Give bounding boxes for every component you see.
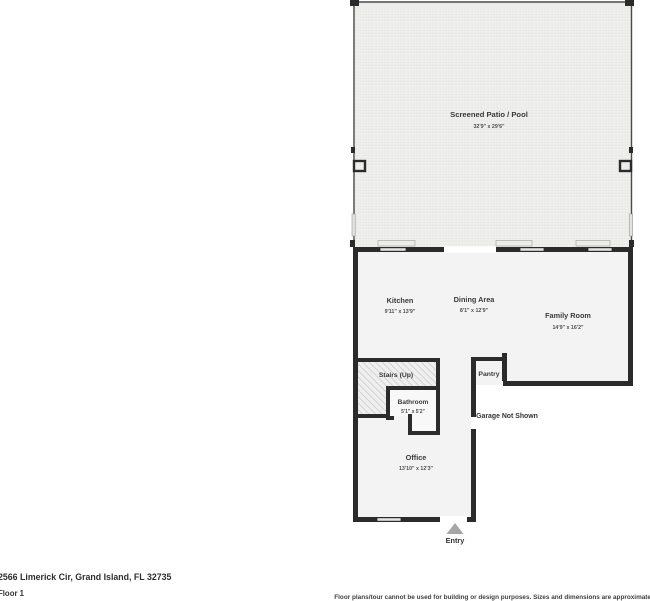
office-dims: 13'10" x 12'3" bbox=[399, 466, 434, 472]
patio-corner-tr bbox=[625, 0, 634, 6]
floor-label: Floor 1 bbox=[0, 589, 25, 598]
wall-pantry-right bbox=[502, 353, 507, 381]
window-office bbox=[377, 518, 401, 521]
patio-sill-1 bbox=[378, 241, 415, 247]
wall-office-right bbox=[471, 429, 476, 522]
patio-door-opening bbox=[444, 247, 496, 254]
entry-opening bbox=[440, 516, 467, 523]
entry-arrow-icon bbox=[447, 523, 464, 534]
bathroom-dims: 5'1" x 5'2" bbox=[401, 409, 425, 415]
patio-corner-bl bbox=[350, 240, 355, 247]
window-top-3 bbox=[588, 248, 612, 251]
disclaimer-text: Floor plans/tour cannot be used for buil… bbox=[334, 594, 650, 601]
dining-dims: 8'1" x 12'9" bbox=[460, 308, 489, 314]
patio-corner-br bbox=[629, 240, 634, 247]
patio-tick-left bbox=[351, 147, 355, 153]
bathroom-label: Bathroom bbox=[398, 399, 429, 406]
patio-sill-2 bbox=[496, 241, 532, 247]
wall-left bbox=[353, 247, 358, 522]
wall-family-bottom bbox=[503, 381, 633, 386]
window-top-2 bbox=[520, 248, 544, 251]
kitchen-dims: 9'11" x 13'9" bbox=[385, 309, 416, 315]
patio-dims: 32'9" x 29'6" bbox=[473, 124, 505, 130]
patio-sill-3 bbox=[576, 241, 610, 247]
wall-pantry-top bbox=[471, 357, 507, 361]
pantry-label: Pantry bbox=[478, 371, 499, 378]
footer: 2566 Limerick Cir, Grand Island, FL 3273… bbox=[0, 572, 650, 601]
patio-window-left bbox=[352, 214, 355, 236]
patio-window-right bbox=[630, 214, 633, 236]
dining-label: Dining Area bbox=[454, 295, 496, 304]
property-address: 2566 Limerick Cir, Grand Island, FL 3273… bbox=[0, 572, 172, 582]
entry-label: Entry bbox=[446, 536, 466, 545]
garage-note: Garage Not Shown bbox=[476, 413, 538, 420]
floorplan-canvas: Screened Patio / Pool 32'9" x 29'6" Kitc… bbox=[0, 0, 650, 601]
family-room-label: Family Room bbox=[545, 311, 591, 320]
office-label: Office bbox=[406, 453, 427, 462]
bathroom-door-opening bbox=[394, 416, 408, 420]
stairs-label: Stairs (Up) bbox=[379, 372, 413, 379]
wall-pantry-left bbox=[471, 357, 476, 417]
patio-tick-right bbox=[629, 147, 633, 153]
wall-right bbox=[628, 247, 633, 386]
floorplan-page: Screened Patio / Pool 32'9" x 29'6" Kitc… bbox=[0, 0, 650, 601]
family-room-dims: 14'9" x 16'2" bbox=[552, 325, 584, 331]
kitchen-label: Kitchen bbox=[387, 296, 414, 305]
room-fills bbox=[353, 2, 632, 517]
patio-corner-tl bbox=[350, 0, 359, 6]
window-top-1 bbox=[380, 248, 406, 251]
patio-label: Screened Patio / Pool bbox=[450, 110, 528, 119]
